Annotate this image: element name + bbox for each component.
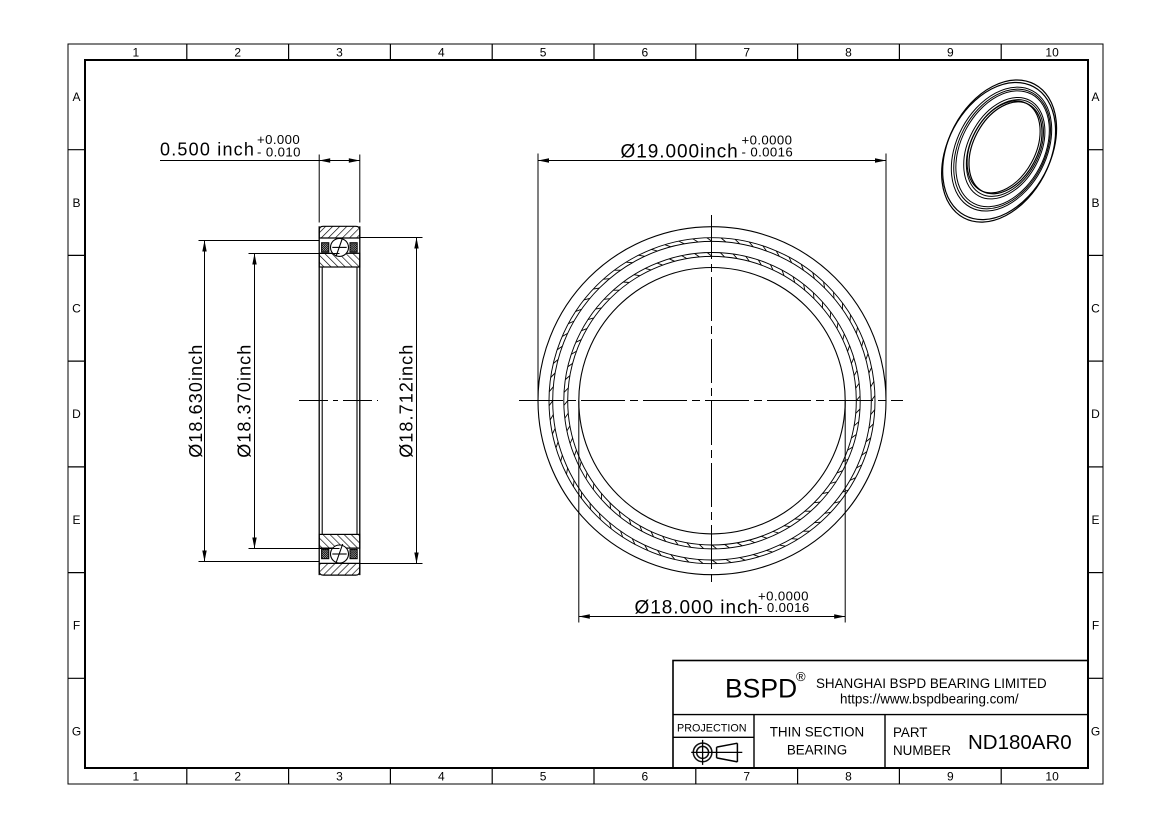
svg-text:2: 2 [234,770,241,784]
svg-text:THIN SECTION: THIN SECTION [770,725,864,740]
svg-text:SHANGHAI BSPD BEARING LIMITED: SHANGHAI BSPD BEARING LIMITED [816,676,1047,691]
svg-text:C: C [72,301,81,315]
svg-text:8: 8 [845,770,852,784]
svg-text:5: 5 [540,770,547,784]
svg-text:10: 10 [1045,770,1059,784]
svg-text:6: 6 [642,770,649,784]
svg-text:3: 3 [336,46,343,60]
svg-text:F: F [1092,619,1099,633]
svg-text:0.500 inch: 0.500 inch [160,140,255,160]
svg-text:- 0.0016: - 0.0016 [758,600,810,615]
svg-text:3: 3 [336,770,343,784]
svg-text:6: 6 [642,46,649,60]
svg-text:E: E [1091,513,1099,527]
svg-text:1: 1 [133,770,140,784]
svg-text:1: 1 [133,46,140,60]
svg-text:Ø18.000 inch: Ø18.000 inch [635,597,759,618]
svg-text:4: 4 [438,46,445,60]
svg-text:A: A [1091,90,1099,104]
svg-text:9: 9 [947,770,954,784]
svg-text:NUMBER: NUMBER [893,743,951,758]
svg-text:8: 8 [845,46,852,60]
svg-text:F: F [73,619,80,633]
svg-text:G: G [72,724,81,738]
svg-text:B: B [72,196,80,210]
svg-text:7: 7 [743,770,750,784]
svg-text:4: 4 [438,770,445,784]
svg-text:ND180AR0: ND180AR0 [968,731,1072,754]
svg-text:®: ® [796,669,806,684]
svg-text:A: A [72,90,80,104]
svg-text:Ø19.000inch: Ø19.000inch [621,142,739,163]
svg-text:D: D [1091,407,1100,421]
svg-text:BEARING: BEARING [787,743,847,758]
svg-text:9: 9 [947,46,954,60]
svg-text:Ø18.630inch: Ø18.630inch [186,344,206,458]
svg-text:C: C [1091,301,1100,315]
svg-text:BSPD: BSPD [725,674,797,704]
svg-text:B: B [1091,196,1099,210]
svg-text:D: D [72,407,81,421]
svg-text:https://www.bspdbearing.com/: https://www.bspdbearing.com/ [840,692,1019,707]
svg-text:2: 2 [234,46,241,60]
svg-text:PROJECTION: PROJECTION [677,723,747,735]
svg-text:Ø18.712inch: Ø18.712inch [397,344,417,458]
svg-text:7: 7 [743,46,750,60]
svg-text:E: E [72,513,80,527]
svg-text:PART: PART [893,725,927,740]
svg-text:G: G [1091,724,1100,738]
svg-text:5: 5 [540,46,547,60]
svg-text:- 0.010: - 0.010 [257,144,301,159]
svg-text:Ø18.370inch: Ø18.370inch [235,344,255,458]
svg-text:- 0.0016: - 0.0016 [742,144,794,159]
svg-text:10: 10 [1045,46,1059,60]
